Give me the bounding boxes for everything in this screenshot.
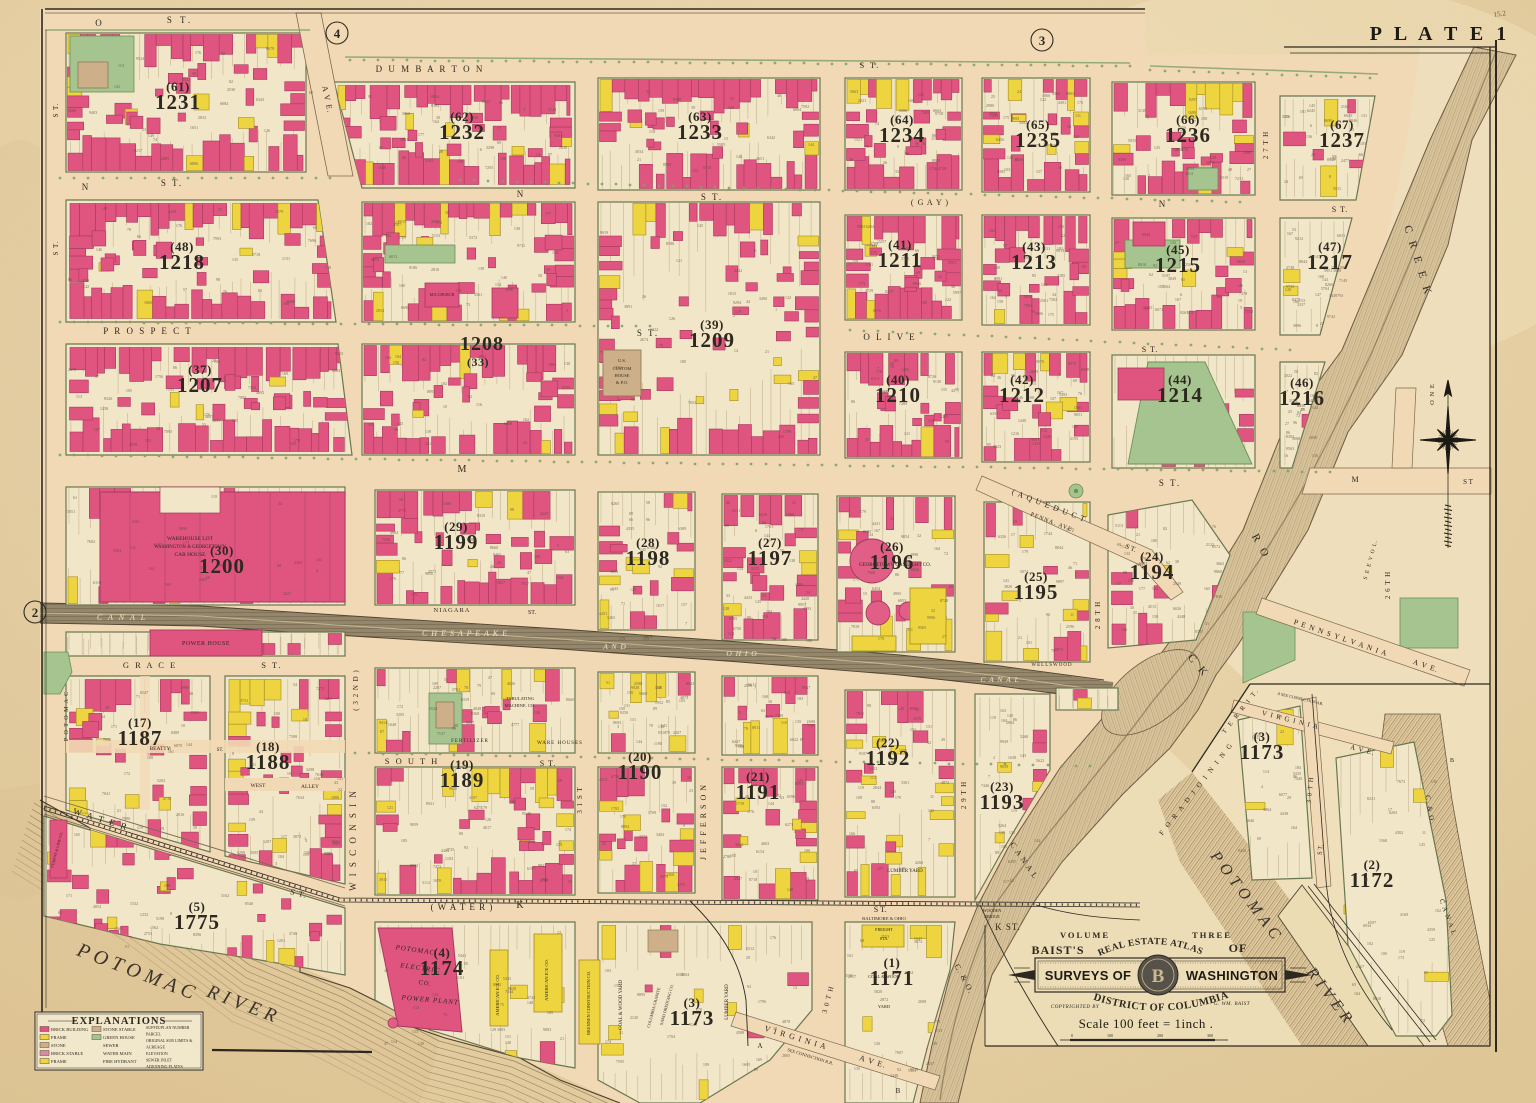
svg-text:7195: 7195 (166, 387, 174, 392)
svg-text:77: 77 (753, 783, 757, 788)
svg-text:39: 39 (193, 825, 197, 830)
svg-text:107: 107 (877, 866, 883, 871)
svg-text:6343: 6343 (256, 97, 264, 102)
svg-text:59: 59 (558, 778, 562, 783)
svg-text:8591: 8591 (910, 706, 918, 711)
svg-text:6110: 6110 (93, 580, 101, 585)
svg-text:7223: 7223 (324, 696, 332, 701)
svg-text:66: 66 (629, 517, 633, 522)
svg-text:100: 100 (1381, 951, 1387, 956)
svg-text:3138: 3138 (1138, 108, 1146, 113)
svg-text:7592: 7592 (801, 104, 809, 109)
svg-text:6342: 6342 (767, 135, 775, 140)
svg-text:111: 111 (907, 627, 913, 632)
svg-text:3372: 3372 (639, 834, 647, 839)
svg-text:107: 107 (1050, 396, 1056, 401)
svg-text:22: 22 (338, 787, 342, 792)
svg-text:6076: 6076 (1024, 255, 1032, 260)
svg-text:30: 30 (602, 841, 606, 846)
svg-text:4382: 4382 (1395, 830, 1403, 835)
svg-text:S T.: S T. (874, 905, 887, 914)
svg-text:90: 90 (905, 151, 909, 156)
svg-text:143: 143 (764, 533, 770, 538)
svg-text:SEWER: SEWER (103, 1043, 120, 1048)
svg-text:4420: 4420 (801, 596, 809, 601)
svg-text:8022: 8022 (182, 77, 190, 82)
svg-text:P O T O M A C: P O T O M A C (64, 691, 70, 741)
svg-text:U.S.: U.S. (618, 358, 626, 363)
svg-text:9212: 9212 (1295, 236, 1303, 241)
svg-text:2805: 2805 (782, 1053, 790, 1058)
svg-text:GREEN HOUSE: GREEN HOUSE (103, 1035, 135, 1040)
svg-text:47: 47 (384, 1041, 388, 1046)
svg-text:2120: 2120 (630, 1015, 638, 1020)
svg-text:4651: 4651 (756, 156, 764, 161)
svg-text:AMERICAN ICE CO.: AMERICAN ICE CO. (495, 974, 500, 1016)
svg-text:8265: 8265 (611, 501, 619, 506)
svg-text:1493: 1493 (1059, 392, 1067, 397)
svg-text:73: 73 (443, 1012, 447, 1017)
svg-text:1638: 1638 (1008, 755, 1016, 760)
svg-text:126: 126 (264, 128, 270, 133)
svg-text:89: 89 (747, 615, 751, 620)
svg-text:6309: 6309 (678, 526, 686, 531)
svg-text:140: 140 (994, 265, 1000, 270)
svg-text:6022: 6022 (790, 737, 798, 742)
svg-text:2 9 T H: 2 9 T H (960, 781, 968, 809)
svg-text:8981: 8981 (994, 276, 1002, 281)
svg-text:8586: 8586 (666, 241, 674, 246)
svg-text:88: 88 (1301, 407, 1305, 412)
svg-text:2475: 2475 (644, 634, 652, 639)
svg-text:136: 136 (1306, 134, 1312, 139)
svg-text:5198: 5198 (156, 916, 164, 921)
svg-text:2817: 2817 (848, 974, 856, 979)
svg-text:2008: 2008 (918, 999, 926, 1004)
svg-text:9: 9 (897, 144, 899, 149)
svg-text:5622: 5622 (1036, 758, 1044, 763)
svg-text:5035: 5035 (1128, 138, 1136, 143)
svg-text:70: 70 (1443, 899, 1447, 904)
svg-text:168: 168 (655, 685, 661, 690)
svg-text:151: 151 (926, 724, 932, 729)
svg-text:32: 32 (646, 89, 650, 94)
svg-text:108: 108 (147, 755, 153, 760)
svg-text:7990: 7990 (122, 816, 130, 821)
svg-text:6804: 6804 (793, 107, 802, 112)
svg-text:SUFFIX/PLAN NUMBER: SUFFIX/PLAN NUMBER (146, 1025, 190, 1030)
svg-text:177: 177 (882, 390, 888, 395)
svg-text:2053: 2053 (376, 308, 384, 313)
svg-text:119: 119 (735, 309, 741, 314)
svg-text:50: 50 (538, 273, 542, 278)
svg-text:82: 82 (1314, 371, 1318, 376)
svg-text:78: 78 (127, 227, 131, 232)
svg-text:80: 80 (949, 584, 953, 589)
svg-text:4026: 4026 (507, 681, 515, 686)
svg-text:11: 11 (1422, 830, 1426, 835)
svg-text:112: 112 (870, 775, 876, 780)
svg-text:8810: 8810 (1373, 996, 1381, 1001)
svg-text:152: 152 (661, 803, 667, 808)
svg-text:111: 111 (1075, 113, 1081, 118)
svg-text:11: 11 (930, 794, 934, 799)
svg-text:6803: 6803 (1066, 91, 1074, 96)
svg-text:FERTILIZER: FERTILIZER (451, 739, 489, 744)
svg-text:8540: 8540 (245, 901, 253, 906)
svg-text:MACHINE. CO.: MACHINE. CO. (505, 703, 536, 708)
svg-text:9051: 9051 (1074, 412, 1082, 417)
svg-text:1017: 1017 (656, 603, 664, 608)
svg-text:121: 121 (387, 805, 393, 810)
svg-text:129: 129 (999, 830, 1005, 835)
svg-text:2: 2 (993, 755, 995, 760)
svg-text:K ST.: K ST. (995, 922, 1021, 932)
svg-text:48: 48 (1228, 167, 1232, 172)
svg-text:9059: 9059 (410, 822, 418, 827)
svg-text:183: 183 (1360, 141, 1366, 146)
svg-text:5268: 5268 (1020, 734, 1028, 739)
svg-text:7: 7 (685, 621, 687, 626)
svg-text:8679: 8679 (266, 46, 274, 51)
svg-text:17: 17 (1011, 532, 1015, 537)
svg-text:108: 108 (1201, 116, 1207, 121)
svg-text:130: 130 (564, 361, 570, 366)
svg-text:8843: 8843 (686, 681, 694, 686)
svg-text:3272: 3272 (677, 882, 685, 887)
svg-text:145: 145 (640, 547, 646, 552)
svg-text:58: 58 (646, 500, 650, 505)
svg-text:51: 51 (125, 944, 129, 949)
svg-text:82: 82 (229, 79, 233, 84)
svg-text:80: 80 (894, 358, 898, 363)
svg-text:3: 3 (856, 542, 858, 547)
svg-text:7095: 7095 (164, 429, 172, 434)
svg-text:79: 79 (1036, 143, 1040, 148)
svg-text:1131: 1131 (282, 256, 290, 261)
svg-text:1200: 1200 (443, 501, 451, 506)
svg-text:184: 184 (214, 359, 221, 364)
svg-text:172: 172 (124, 771, 130, 776)
svg-text:7052: 7052 (688, 400, 696, 405)
svg-text:S T.: S T. (1142, 345, 1159, 354)
svg-text:36: 36 (402, 155, 406, 160)
svg-text:108: 108 (164, 883, 170, 888)
svg-text:173: 173 (859, 281, 865, 286)
svg-text:1568: 1568 (1379, 838, 1387, 843)
svg-text:POWER HOUSE: POWER HOUSE (182, 641, 230, 647)
svg-text:8: 8 (232, 751, 234, 756)
svg-text:143: 143 (397, 421, 403, 426)
svg-text:151: 151 (505, 1034, 511, 1039)
svg-text:70: 70 (1031, 309, 1035, 314)
svg-text:125: 125 (1154, 145, 1160, 150)
svg-text:6084: 6084 (220, 101, 229, 106)
svg-text:11: 11 (753, 248, 757, 253)
svg-text:140: 140 (899, 866, 905, 871)
svg-text:6113: 6113 (871, 376, 879, 381)
svg-text:139: 139 (425, 429, 431, 434)
svg-text:3561: 3561 (474, 292, 482, 297)
svg-text:103: 103 (605, 968, 611, 973)
svg-text:200: 200 (1157, 1033, 1163, 1038)
svg-text:125: 125 (1429, 937, 1435, 942)
svg-text:72: 72 (1421, 1018, 1425, 1023)
svg-text:2: 2 (32, 605, 39, 620)
svg-text:129: 129 (898, 706, 904, 711)
svg-text:19: 19 (1013, 519, 1017, 524)
svg-text:178: 178 (876, 369, 882, 374)
svg-text:112: 112 (1041, 428, 1047, 433)
svg-text:51: 51 (606, 680, 610, 685)
svg-text:7473: 7473 (433, 864, 441, 869)
svg-text:176: 176 (390, 576, 396, 581)
svg-text:41: 41 (890, 516, 894, 521)
svg-text:9996: 9996 (927, 615, 935, 620)
svg-text:179: 179 (1173, 147, 1179, 152)
svg-text:B: B (896, 1087, 901, 1095)
svg-text:6204: 6204 (866, 224, 875, 229)
svg-text:149: 149 (418, 1041, 424, 1046)
svg-text:40: 40 (103, 206, 107, 211)
svg-text:185: 185 (401, 838, 407, 843)
svg-text:176: 176 (195, 50, 201, 55)
svg-text:176: 176 (217, 563, 223, 568)
svg-text:5202: 5202 (157, 778, 165, 783)
svg-text:5015: 5015 (398, 219, 406, 224)
svg-text:110: 110 (781, 720, 787, 725)
svg-text:5704: 5704 (1321, 286, 1330, 291)
svg-text:3731: 3731 (240, 698, 248, 703)
svg-text:142: 142 (928, 808, 934, 813)
svg-text:144: 144 (768, 801, 775, 806)
svg-text:155: 155 (941, 387, 947, 392)
svg-text:WEST: WEST (251, 783, 267, 789)
svg-text:6013: 6013 (389, 254, 397, 259)
svg-text:2885: 2885 (161, 156, 169, 161)
svg-text:90: 90 (1046, 612, 1050, 617)
svg-text:3864: 3864 (1263, 807, 1272, 812)
svg-text:27: 27 (1285, 421, 1289, 426)
svg-text:70: 70 (1184, 147, 1188, 152)
svg-text:5: 5 (739, 710, 741, 715)
svg-text:5074: 5074 (1020, 569, 1029, 574)
svg-text:6456: 6456 (996, 137, 1004, 142)
svg-text:125: 125 (630, 587, 636, 592)
svg-text:144: 144 (1329, 293, 1336, 298)
svg-text:2753: 2753 (144, 931, 152, 936)
svg-text:164: 164 (1354, 991, 1361, 996)
svg-text:6154: 6154 (756, 849, 765, 854)
svg-text:6187: 6187 (527, 866, 535, 871)
svg-text:159: 159 (304, 850, 310, 855)
svg-text:179: 179 (860, 509, 866, 514)
svg-text:6: 6 (755, 528, 757, 533)
svg-text:118: 118 (990, 715, 996, 720)
svg-text:36: 36 (951, 284, 955, 289)
svg-text:72: 72 (218, 207, 222, 212)
svg-text:9375: 9375 (1068, 361, 1076, 366)
svg-text:62: 62 (1166, 560, 1170, 565)
svg-text:17: 17 (497, 126, 501, 131)
svg-text:1173: 1173 (1240, 740, 1285, 764)
svg-text:4572: 4572 (599, 777, 607, 782)
svg-text:9693: 9693 (613, 720, 621, 725)
svg-text:185: 185 (1001, 844, 1007, 849)
svg-text:12: 12 (203, 376, 207, 381)
svg-text:144: 144 (1034, 838, 1041, 843)
svg-text:ST.: ST. (528, 610, 537, 616)
svg-text:( W A T E R ): ( W A T E R ) (431, 902, 494, 912)
svg-text:5378: 5378 (913, 716, 921, 721)
svg-text:1161: 1161 (865, 262, 873, 267)
svg-text:136: 136 (933, 256, 939, 261)
svg-text:BAIST'S: BAIST'S (1031, 943, 1084, 957)
svg-text:132: 132 (432, 992, 438, 997)
svg-text:146: 146 (1017, 395, 1023, 400)
svg-text:62: 62 (468, 394, 472, 399)
svg-text:17: 17 (1388, 807, 1392, 812)
svg-text:7382: 7382 (383, 233, 391, 238)
svg-text:2227: 2227 (283, 591, 291, 596)
svg-text:119: 119 (1399, 949, 1405, 954)
svg-text:4588: 4588 (736, 1030, 744, 1035)
svg-text:4107: 4107 (469, 795, 477, 800)
svg-text:96: 96 (915, 141, 919, 146)
svg-text:78: 78 (1051, 648, 1055, 653)
svg-text:3162: 3162 (221, 893, 229, 898)
svg-text:16: 16 (1284, 453, 1288, 458)
svg-text:69: 69 (309, 90, 313, 95)
svg-text:7149: 7149 (1339, 278, 1347, 283)
svg-text:2846: 2846 (1349, 118, 1357, 123)
svg-text:175: 175 (1003, 115, 1009, 120)
svg-text:93: 93 (464, 845, 468, 850)
svg-text:8010: 8010 (1138, 262, 1146, 267)
svg-text:P R O S P E C T: P R O S P E C T (103, 326, 192, 336)
svg-text:176: 176 (176, 223, 182, 228)
svg-text:2 8 T H: 2 8 T H (1094, 601, 1102, 629)
svg-text:67: 67 (379, 145, 383, 150)
svg-text:106: 106 (738, 744, 744, 749)
svg-text:2446: 2446 (1043, 434, 1051, 439)
svg-text:2980: 2980 (986, 103, 994, 108)
svg-text:174: 174 (605, 1039, 612, 1044)
svg-text:11: 11 (931, 136, 935, 141)
svg-text:29: 29 (497, 560, 501, 565)
svg-text:86: 86 (1217, 294, 1221, 299)
svg-text:140: 140 (501, 275, 507, 280)
svg-text:1222: 1222 (650, 327, 658, 332)
svg-text:179: 179 (895, 795, 901, 800)
svg-text:123: 123 (797, 778, 803, 783)
svg-text:176: 176 (748, 809, 754, 814)
svg-text:37: 37 (632, 861, 636, 866)
svg-text:6895: 6895 (371, 257, 379, 262)
svg-text:1440: 1440 (1018, 418, 1026, 423)
svg-text:5686: 5686 (899, 108, 907, 113)
svg-text:4304: 4304 (681, 972, 690, 977)
svg-text:181: 181 (1300, 109, 1306, 114)
svg-text:5011: 5011 (1333, 186, 1341, 191)
svg-text:119: 119 (762, 614, 768, 619)
svg-text:3175: 3175 (1066, 527, 1074, 532)
svg-text:1199: 1199 (434, 530, 479, 554)
svg-text:66: 66 (915, 248, 919, 253)
svg-text:4984: 4984 (390, 530, 399, 535)
svg-text:180: 180 (804, 848, 810, 853)
svg-text:6696: 6696 (401, 305, 409, 310)
svg-text:5153: 5153 (432, 233, 440, 238)
svg-text:3839: 3839 (129, 442, 137, 447)
svg-text:BALTIMORE & OHIO: BALTIMORE & OHIO (862, 916, 906, 921)
svg-text:92: 92 (747, 984, 751, 989)
svg-text:4169: 4169 (1400, 912, 1408, 917)
svg-text:113: 113 (76, 394, 82, 399)
svg-text:2696: 2696 (1035, 311, 1043, 316)
svg-text:23: 23 (762, 593, 766, 598)
svg-text:1015: 1015 (728, 291, 736, 296)
svg-text:8004: 8004 (431, 94, 440, 99)
svg-text:88: 88 (1123, 570, 1127, 575)
svg-text:9423: 9423 (903, 246, 911, 251)
svg-text:6896: 6896 (190, 161, 198, 166)
svg-text:1782: 1782 (611, 806, 619, 811)
svg-text:109: 109 (534, 554, 540, 559)
svg-text:1719: 1719 (736, 801, 744, 806)
svg-text:PARCEL: PARCEL (146, 1032, 162, 1037)
svg-text:4355: 4355 (626, 526, 634, 531)
svg-text:19: 19 (568, 879, 572, 884)
svg-text:9860: 9860 (1214, 569, 1222, 574)
svg-text:7066: 7066 (548, 362, 556, 367)
svg-text:119: 119 (137, 825, 143, 830)
svg-text:135: 135 (232, 257, 238, 262)
svg-text:170: 170 (620, 814, 626, 819)
svg-text:3022: 3022 (1284, 373, 1292, 378)
svg-text:50: 50 (546, 267, 550, 272)
svg-text:166: 166 (849, 831, 855, 836)
svg-text:8769: 8769 (663, 162, 671, 167)
svg-text:1495: 1495 (901, 367, 909, 372)
svg-text:122: 122 (1040, 97, 1046, 102)
svg-text:27: 27 (1320, 321, 1324, 326)
svg-text:9318: 9318 (658, 730, 666, 735)
svg-text:15: 15 (724, 136, 728, 141)
svg-text:111: 111 (368, 422, 374, 427)
svg-text:J E F F E R S O N: J E F F E R S O N (699, 784, 708, 860)
svg-text:4260: 4260 (915, 860, 923, 865)
svg-text:168: 168 (806, 638, 812, 643)
svg-text:N: N (1159, 199, 1166, 209)
svg-text:1638: 1638 (378, 165, 386, 170)
svg-text:5718: 5718 (252, 252, 260, 257)
svg-text:159: 159 (658, 108, 664, 113)
svg-text:6: 6 (1310, 123, 1312, 128)
svg-text:102: 102 (1435, 908, 1441, 913)
svg-text:5: 5 (557, 543, 559, 548)
svg-text:8844: 8844 (1299, 259, 1308, 264)
svg-text:4718: 4718 (163, 796, 171, 801)
svg-text:118: 118 (649, 129, 655, 134)
svg-text:128: 128 (485, 817, 491, 822)
svg-text:102: 102 (1367, 941, 1373, 946)
svg-text:70: 70 (649, 723, 653, 728)
svg-text:9253: 9253 (562, 385, 570, 390)
svg-text:2804: 2804 (1006, 720, 1015, 725)
svg-text:4: 4 (334, 26, 341, 41)
svg-text:S T.: S T. (52, 240, 60, 255)
